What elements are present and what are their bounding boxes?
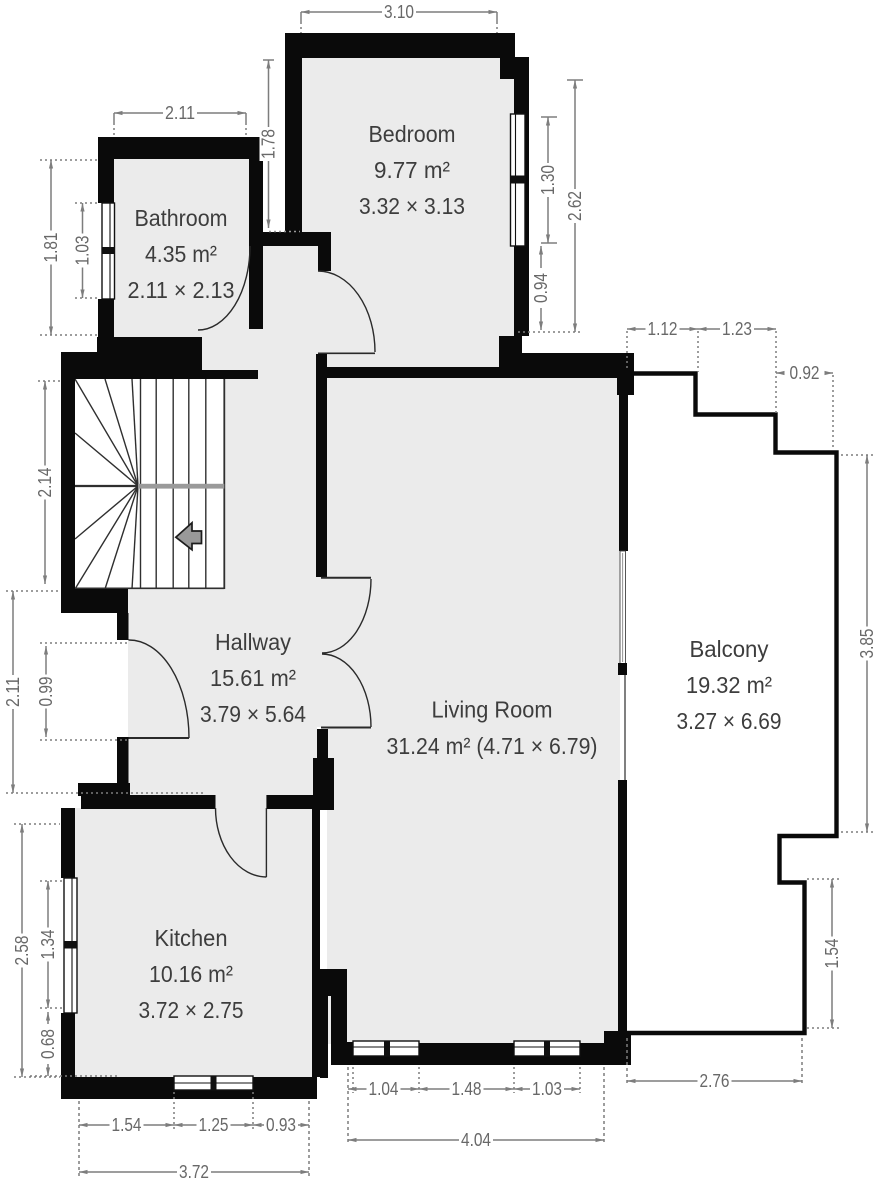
svg-text:3.72 × 2.75: 3.72 × 2.75 [139, 997, 244, 1023]
svg-text:0.93: 0.93 [266, 1115, 296, 1135]
svg-text:Bedroom: Bedroom [369, 121, 456, 147]
svg-text:3.85: 3.85 [857, 629, 877, 659]
svg-text:10.16 m²: 10.16 m² [149, 961, 233, 987]
svg-text:2.14: 2.14 [35, 468, 55, 498]
svg-text:0.68: 0.68 [38, 1029, 58, 1059]
svg-text:4.35 m²: 4.35 m² [145, 241, 217, 267]
svg-text:1.81: 1.81 [41, 233, 61, 263]
svg-text:1.23: 1.23 [722, 319, 752, 339]
svg-text:1.48: 1.48 [452, 1079, 482, 1099]
svg-text:31.24 m² (4.71 × 6.79): 31.24 m² (4.71 × 6.79) [387, 733, 598, 759]
svg-text:1.54: 1.54 [822, 939, 842, 969]
svg-text:2.11: 2.11 [165, 103, 195, 123]
svg-text:3.79 × 5.64: 3.79 × 5.64 [200, 701, 306, 727]
svg-text:1.03: 1.03 [532, 1079, 562, 1099]
svg-text:1.54: 1.54 [112, 1115, 142, 1135]
svg-text:0.99: 0.99 [36, 677, 56, 707]
svg-text:1.34: 1.34 [38, 930, 58, 960]
svg-text:1.03: 1.03 [73, 236, 93, 266]
svg-text:4.04: 4.04 [461, 1130, 491, 1150]
svg-text:1.30: 1.30 [538, 165, 558, 195]
svg-text:15.61 m²: 15.61 m² [210, 665, 296, 691]
svg-text:Hallway: Hallway [215, 629, 291, 655]
svg-text:3.27 × 6.69: 3.27 × 6.69 [677, 708, 782, 734]
svg-text:0.92: 0.92 [790, 363, 820, 383]
svg-text:1.12: 1.12 [648, 319, 678, 339]
svg-text:Living Room: Living Room [432, 697, 553, 723]
svg-text:2.76: 2.76 [700, 1071, 730, 1091]
svg-text:Bathroom: Bathroom [135, 205, 228, 231]
svg-text:9.77 m²: 9.77 m² [374, 157, 450, 183]
svg-text:2.58: 2.58 [12, 936, 32, 966]
svg-text:3.32 × 3.13: 3.32 × 3.13 [359, 193, 465, 219]
svg-text:1.78: 1.78 [259, 129, 279, 159]
svg-text:2.11 × 2.13: 2.11 × 2.13 [128, 277, 235, 303]
svg-text:2.11: 2.11 [3, 677, 23, 707]
svg-text:3.10: 3.10 [384, 2, 414, 22]
svg-text:2.62: 2.62 [565, 191, 585, 221]
svg-text:1.04: 1.04 [369, 1079, 399, 1099]
svg-text:Balcony: Balcony [690, 636, 769, 662]
svg-text:0.94: 0.94 [531, 273, 551, 303]
svg-text:19.32 m²: 19.32 m² [686, 672, 772, 698]
svg-text:Kitchen: Kitchen [155, 925, 228, 951]
svg-text:3.72: 3.72 [179, 1162, 209, 1182]
svg-text:1.25: 1.25 [199, 1115, 229, 1135]
